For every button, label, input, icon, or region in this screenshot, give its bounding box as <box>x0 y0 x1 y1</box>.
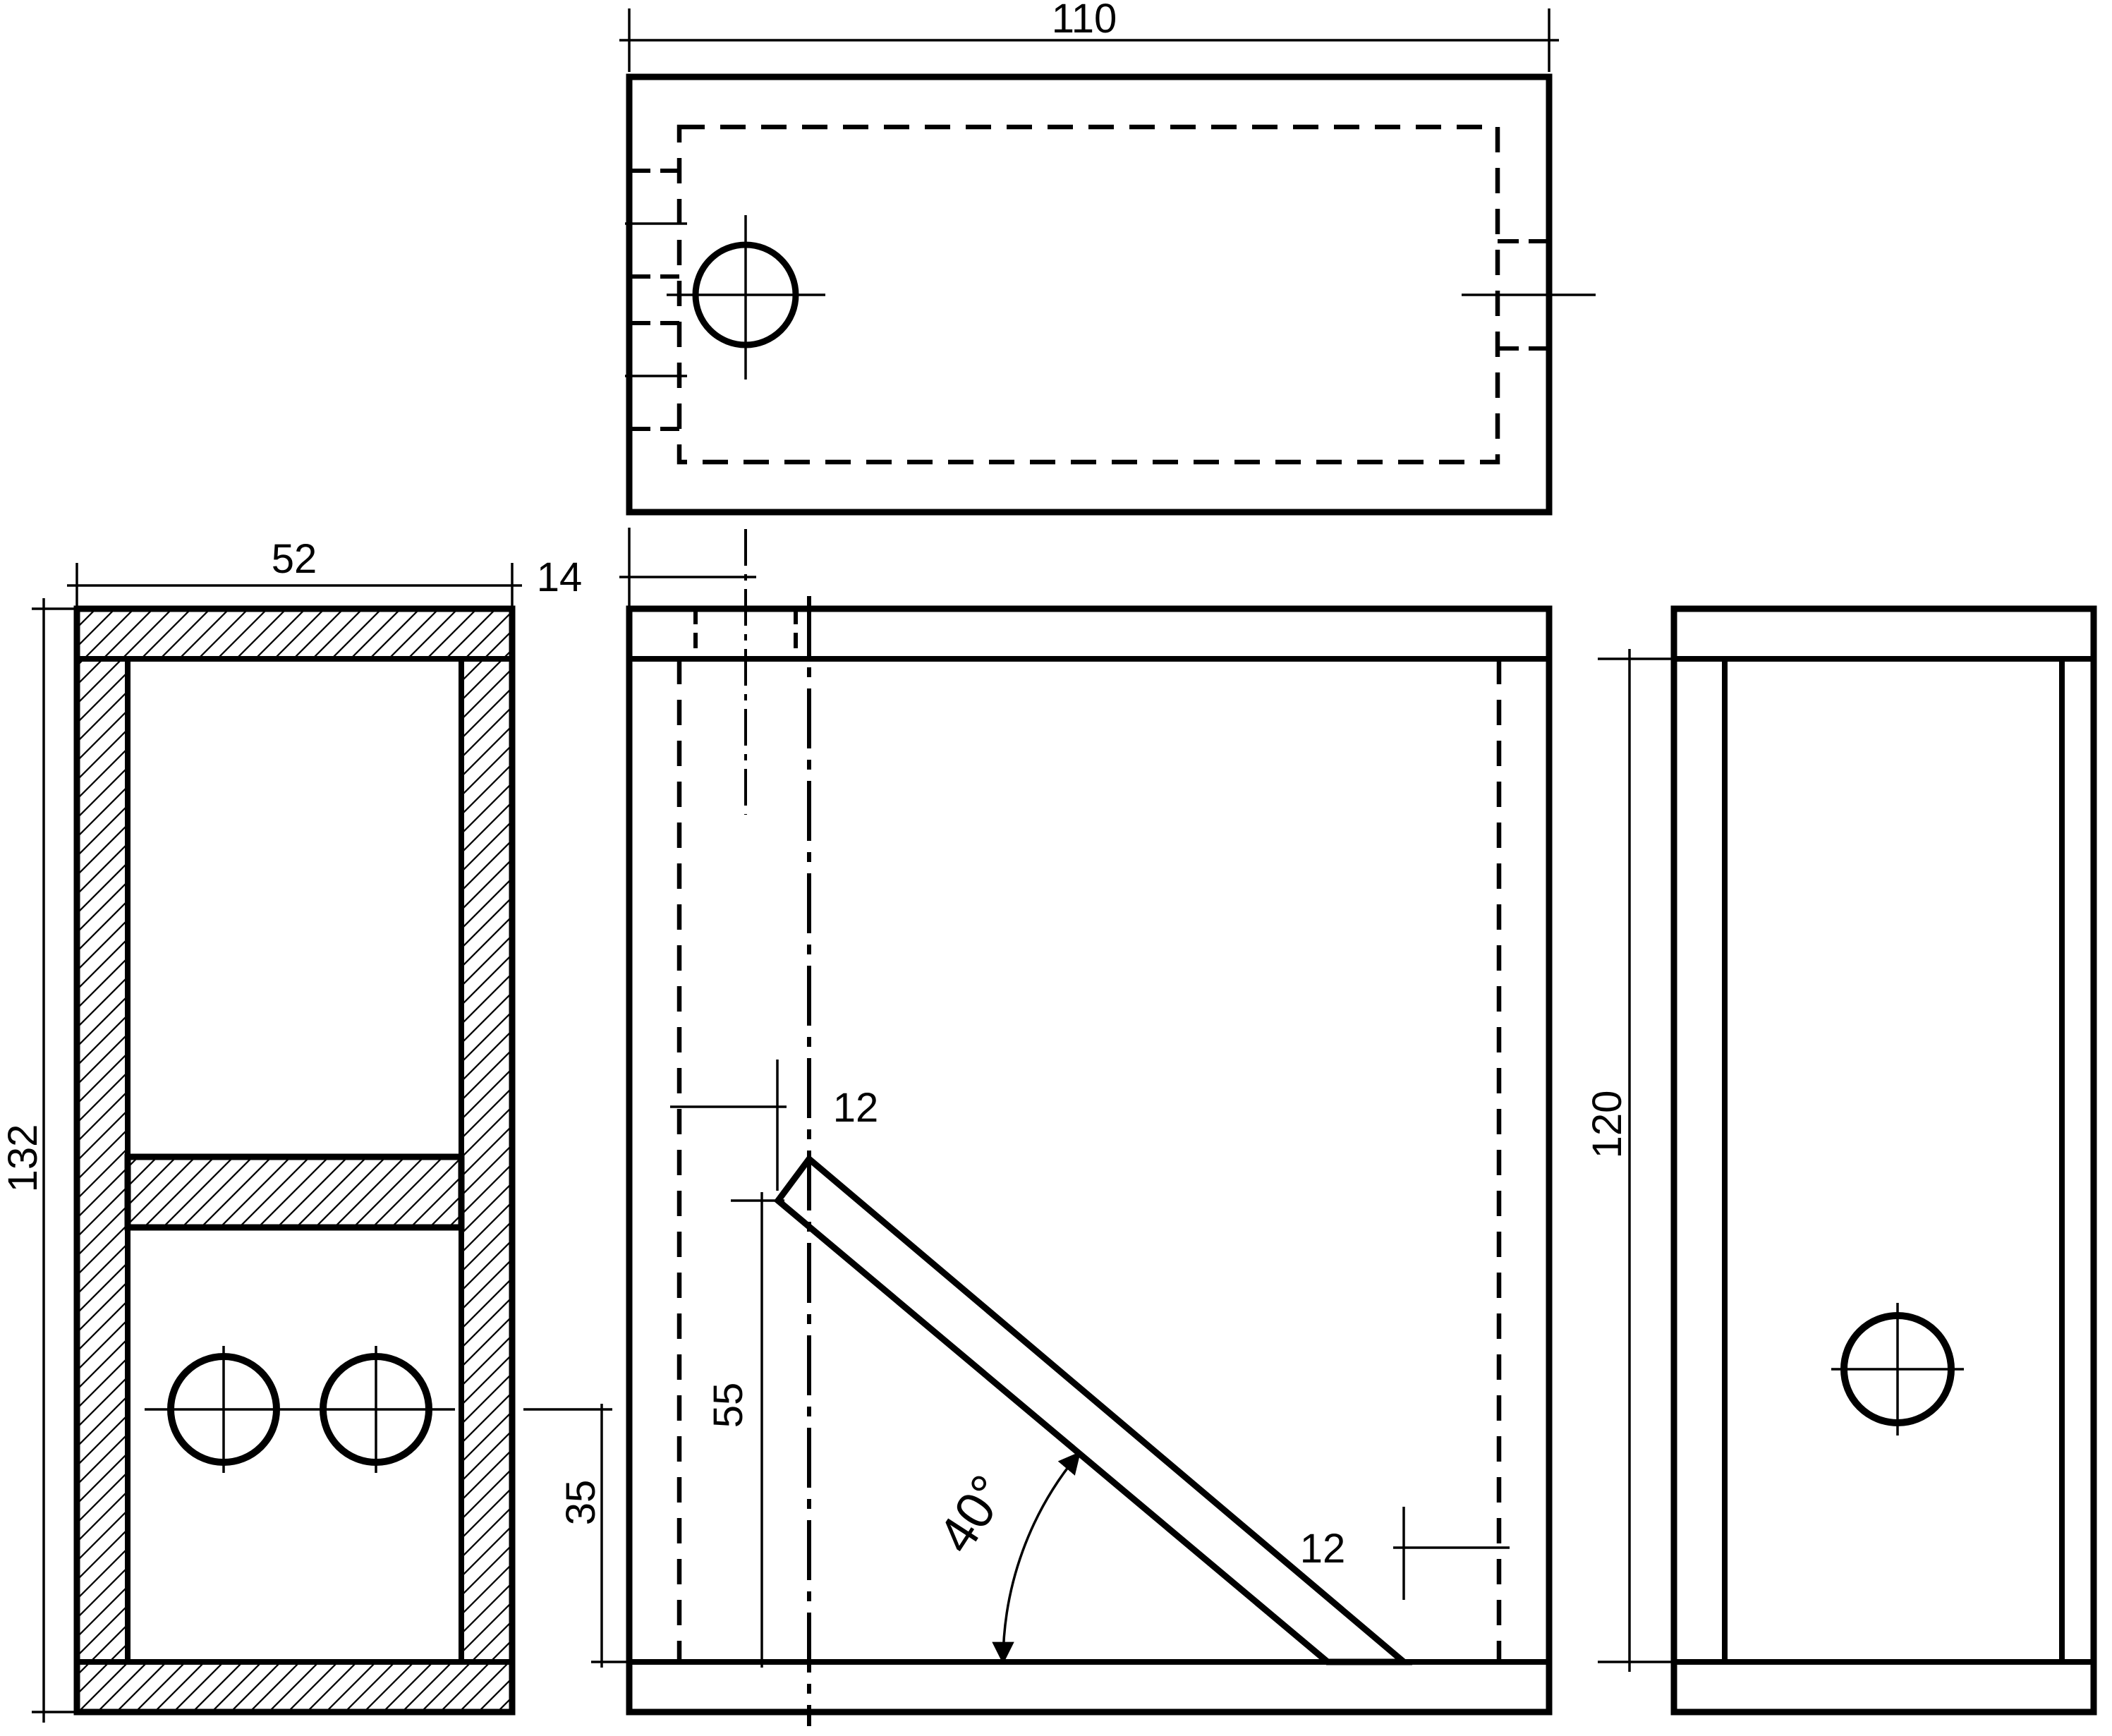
dimension-hole-height: 35 <box>523 1404 631 1668</box>
dimension-label-110: 110 <box>1052 0 1117 42</box>
dimension-label-14: 14 <box>537 554 583 600</box>
front-panel-section <box>77 659 128 1662</box>
dimension-overall-height: 132 <box>0 598 74 1723</box>
angle-arc <box>1003 1453 1079 1662</box>
dimension-overall-width: 110 <box>619 0 1559 72</box>
sloped-board-section <box>128 1157 461 1227</box>
dimension-label-12-slot: 12 <box>833 1085 879 1131</box>
left-section-view <box>77 609 512 1712</box>
right-view <box>1674 609 2094 1712</box>
dimension-label-52: 52 <box>272 536 317 582</box>
bottom-wall-section <box>77 1662 512 1712</box>
dimension-label-35: 35 <box>558 1480 604 1526</box>
dimension-depth: 52 <box>67 536 522 609</box>
dimension-hole-offset: 14 <box>537 528 756 609</box>
dimension-label-12-bottom: 12 <box>1300 1526 1346 1572</box>
technical-drawing: 110 52 132 14 <box>0 0 2112 1736</box>
drawing-sheet: 110 52 132 14 <box>0 0 2112 1736</box>
top-wall-section <box>77 609 512 659</box>
top-view <box>625 77 1596 512</box>
dimension-label-40deg: 40° <box>926 1465 1019 1563</box>
dimension-board-angle: 40° <box>926 1453 1079 1662</box>
dimension-inner-height: 120 <box>1584 649 1674 1672</box>
right-view-outline <box>1674 609 2094 1712</box>
dimension-slot-width: 12 <box>670 1060 878 1191</box>
dimension-label-120: 120 <box>1584 1091 1630 1159</box>
dimension-bottom-gap: 12 <box>1300 1507 1510 1600</box>
dimension-label-55: 55 <box>705 1383 751 1428</box>
sloped-board <box>778 1159 1404 1662</box>
dimension-label-132: 132 <box>0 1124 46 1193</box>
dimension-tip-height: 55 <box>705 1192 784 1668</box>
back-panel-section <box>461 659 512 1662</box>
